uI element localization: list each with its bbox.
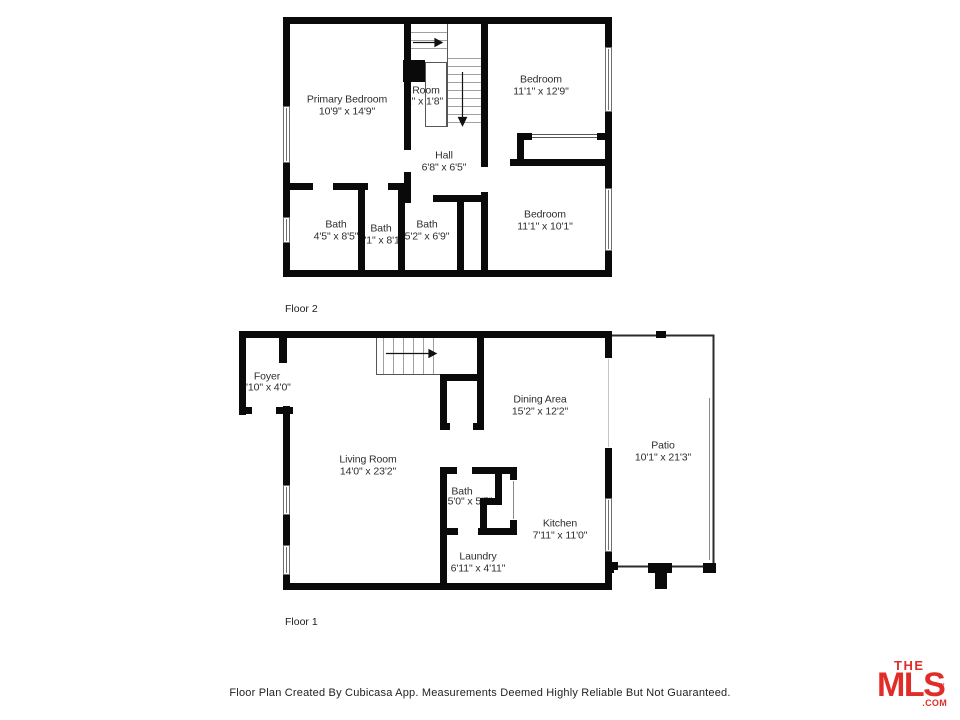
room-name: Bedroom [517, 210, 573, 222]
room-dims-bath-f1: 5'0" x 5'5" [448, 496, 493, 508]
floor-2-caption: Floor 2 [285, 303, 318, 315]
room-label-bath-2: Bath 3'1" x 8'1" [359, 224, 404, 247]
room-name: Bath [314, 220, 359, 232]
room-dims: 15'2" x 12'2" [512, 406, 568, 418]
room-dims: 14'0" x 23'2" [339, 466, 396, 478]
room-name: Kitchen [533, 519, 588, 531]
room-dims: 7'11" x 11'0" [533, 530, 588, 542]
themls-logo-mls: MLS™ [877, 672, 951, 699]
room-dims: 3'1" x 8'1" [359, 235, 404, 247]
disclaimer-text: Floor Plan Created By Cubicasa App. Meas… [0, 687, 960, 699]
room-name: Primary Bedroom [307, 95, 387, 107]
room-dims: 10'9" x 14'9" [307, 106, 387, 118]
room-label-dining-area: Dining Area 15'2" x 12'2" [512, 395, 568, 418]
room-name: Patio [635, 441, 691, 453]
floorplan-page: { "colors": { "wall": "#0a0a0a", "logo_r… [0, 0, 960, 720]
room-name: Dining Area [512, 395, 568, 407]
room-label-bath-3: Bath 5'2" x 6'9" [405, 220, 450, 243]
room-dims: 10'1" x 21'3" [635, 452, 691, 464]
room-dims: 11'1" x 12'9" [513, 86, 569, 98]
room-label-hall: Hall 6'8" x 6'5" [422, 151, 467, 174]
room-dims-foyer: '10" x 4'0" [246, 382, 291, 394]
room-dims: 5'2" x 6'9" [405, 231, 450, 243]
room-name: Bedroom [513, 75, 569, 87]
room-dims: 11'1" x 10'1" [517, 221, 573, 233]
room-dims: 6'8" x 6'5" [422, 162, 467, 174]
room-label-laundry: Laundry 6'11" x 4'11" [451, 552, 506, 575]
room-dims: 6'11" x 4'11" [451, 563, 506, 575]
room-label-patio: Patio 10'1" x 21'3" [635, 441, 691, 464]
room-label-bedroom-top: Bedroom 11'1" x 12'9" [513, 75, 569, 98]
room-label-primary-bedroom: Primary Bedroom 10'9" x 14'9" [307, 95, 387, 118]
trademark-symbol: ™ [938, 673, 945, 700]
room-label-living-room: Living Room 14'0" x 23'2" [339, 455, 396, 478]
room-name: Bath [359, 224, 404, 236]
room-name: Living Room [339, 455, 396, 467]
room-name: Bath [405, 220, 450, 232]
room-name: Laundry [451, 552, 506, 564]
room-dims: 4'5" x 8'5" [314, 231, 359, 243]
room-label-kitchen: Kitchen 7'11" x 11'0" [533, 519, 588, 542]
floorplan-walls-drawing [0, 0, 960, 720]
room-label-bedroom-bottom: Bedroom 11'1" x 10'1" [517, 210, 573, 233]
room-name: Hall [422, 151, 467, 163]
room-label-bath-1: Bath 4'5" x 8'5" [314, 220, 359, 243]
room-dims-stair-room: '2" x 1'8" [404, 96, 443, 108]
floor-1-caption: Floor 1 [285, 616, 318, 628]
themls-logo: THE MLS™ .COM [877, 660, 951, 708]
